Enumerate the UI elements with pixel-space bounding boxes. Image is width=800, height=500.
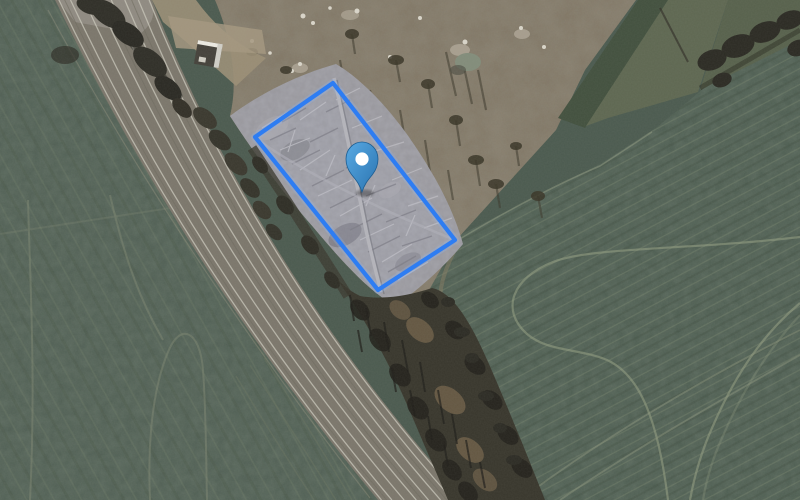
satellite-map-canvas[interactable]	[0, 0, 800, 500]
map-viewport[interactable]	[0, 0, 800, 500]
pin-dot	[355, 152, 368, 165]
pin-shadow	[356, 190, 374, 197]
